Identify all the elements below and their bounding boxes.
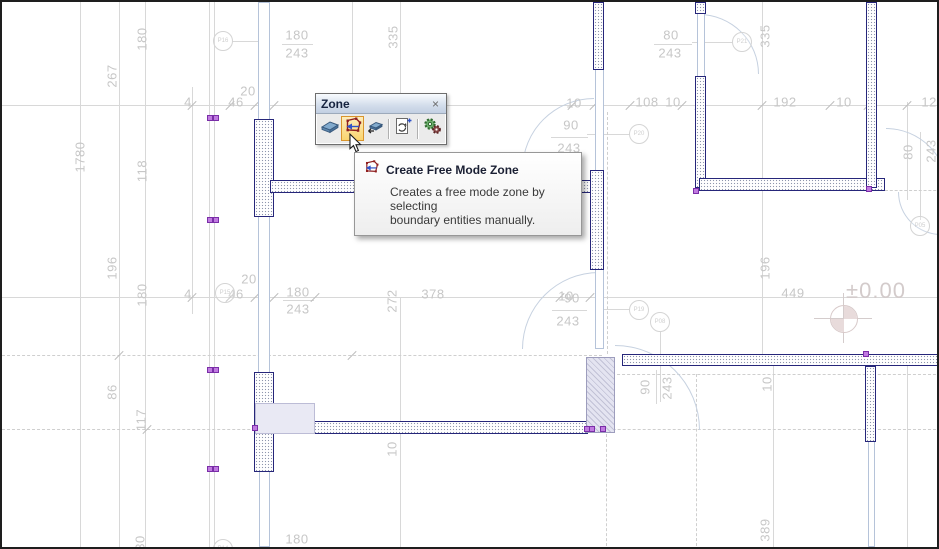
zone-free-mode-icon: [363, 159, 380, 181]
dimension-label: 10: [566, 96, 581, 111]
dimension-label: 108: [635, 95, 658, 110]
door-swing-arc: [522, 272, 599, 349]
window-symbol: [258, 2, 270, 120]
selection-handle: [213, 217, 219, 223]
tooltip-description-line2: boundary entities manually.: [390, 213, 573, 227]
dimension-label: 90: [638, 379, 653, 394]
dimension-label: 20: [240, 84, 255, 99]
dimension-label: 118: [135, 160, 150, 182]
zone-toolbar-buttons: [316, 114, 446, 143]
dimension-label: 192: [773, 95, 796, 110]
window-symbol: [697, 13, 705, 77]
level-marker-quadrant: [831, 319, 844, 332]
tooltip-create-free-mode-zone: Create Free Mode Zone Creates a free mod…: [354, 152, 582, 236]
dashed-reference-line: [885, 190, 939, 191]
reference-bubble: P14: [213, 539, 233, 549]
dimension-label: 90: [563, 118, 578, 133]
dimension-label: 335: [386, 25, 401, 48]
window-symbol: [595, 68, 604, 172]
dimension-label: 80: [663, 28, 678, 43]
dimension-label: 196: [758, 256, 773, 279]
selection-handle: [589, 426, 595, 432]
dimension-label: 180: [135, 283, 150, 306]
wall-segment: [866, 2, 877, 188]
cad-drawing-canvas[interactable]: 4462018024333510902431081080243192101293…: [0, 0, 939, 549]
wall-segment: [590, 170, 604, 270]
dimension-label: 117: [134, 409, 149, 431]
dashed-reference-line: [606, 434, 607, 549]
dimension-label: 80: [901, 144, 916, 159]
selection-handle: [213, 367, 219, 373]
dimension-label: 20: [241, 272, 256, 287]
dimension-label: 180: [135, 27, 150, 50]
dimension-label: 90: [564, 291, 579, 306]
dimension-label: 243: [286, 302, 309, 317]
level-value: ±0.00: [846, 278, 906, 304]
dimension-label: 196: [105, 256, 120, 279]
dim-line: [80, 2, 81, 549]
dimension-label: 180: [285, 28, 308, 43]
dim-line: [2, 105, 939, 106]
dimension-label: 378: [421, 287, 444, 302]
dim-line: [352, 2, 353, 105]
wall-segment: [313, 421, 588, 434]
tooltip-description-line1: Creates a free mode zone by selecting: [390, 185, 573, 213]
dimension-label: 335: [758, 24, 773, 47]
create-zone-reference-button[interactable]: [364, 116, 386, 141]
reference-bubble: P15: [215, 283, 235, 303]
dimension-label: 30: [133, 535, 148, 549]
gears-icon: [422, 116, 442, 141]
wall-segment: [622, 354, 939, 366]
dimension-label: 10: [385, 441, 400, 456]
dim-line: [232, 41, 258, 42]
dimension-label: 243: [924, 139, 939, 162]
dim-line: [192, 87, 193, 314]
dimension-label: 180: [286, 285, 309, 300]
zone-box-icon: [320, 116, 340, 141]
zone-toolbar-titlebar[interactable]: Zone ×: [316, 94, 446, 114]
dim-line: [239, 547, 314, 548]
zone-toolbar[interactable]: Zone ×: [315, 93, 447, 145]
window-symbol: [868, 441, 875, 547]
reference-bubble: P21: [732, 32, 752, 52]
dimension-label: 389: [758, 518, 773, 541]
zone-settings-button[interactable]: [421, 116, 443, 141]
dimension-label: 10: [665, 95, 680, 110]
zone-box-small-icon: [365, 116, 385, 141]
reference-bubble: P20: [629, 124, 649, 144]
reference-bubble: P05: [910, 216, 930, 236]
update-zones-button[interactable]: [392, 116, 414, 141]
mouse-cursor-icon: [348, 133, 363, 159]
wall-segment: [699, 178, 885, 191]
selection-handle: [866, 186, 872, 192]
dimension-label: 243: [556, 314, 579, 329]
tooltip-title: Create Free Mode Zone: [386, 163, 519, 177]
window-symbol: [259, 471, 270, 547]
toolbar-separator: [388, 119, 390, 139]
dimension-label: 10: [836, 95, 851, 110]
dimension-label: 267: [105, 64, 120, 87]
dashed-reference-line: [2, 355, 602, 356]
wall-segment: [593, 2, 604, 70]
selection-handle: [252, 425, 258, 431]
wall-segment: [254, 119, 274, 217]
selection-handle: [693, 188, 699, 194]
reference-bubble: P08: [650, 312, 670, 332]
dimension-label: 243: [285, 46, 308, 61]
window-symbol: [258, 216, 270, 373]
reference-bubble: P19: [629, 300, 649, 320]
wall-segment: [695, 76, 706, 188]
dimension-label: 243: [658, 46, 681, 61]
dimension-label: 272: [385, 289, 400, 312]
wall-segment: [695, 2, 706, 14]
window-symbol: [595, 269, 604, 349]
dimension-label: 1780: [73, 142, 88, 173]
dimension-label: 86: [105, 384, 120, 399]
dimension-label: 449: [781, 286, 804, 301]
selection-handle: [213, 115, 219, 121]
level-marker-icon: [830, 305, 858, 333]
create-zone-button[interactable]: [319, 116, 341, 141]
dashed-reference-line: [607, 112, 608, 354]
dimension-label: 243: [660, 376, 675, 399]
dimension-label: 4: [184, 95, 192, 110]
selected-zone-rect: [255, 403, 315, 434]
dimension-label: 129: [921, 95, 939, 110]
toolbar-separator: [417, 119, 419, 139]
column-element: [586, 357, 615, 433]
selection-handle: [213, 466, 219, 472]
dim-line: [145, 2, 146, 549]
level-marker-quadrant: [844, 306, 857, 319]
dim-line: [907, 354, 908, 549]
wall-segment: [865, 366, 876, 442]
close-icon[interactable]: ×: [430, 98, 441, 110]
dimension-label: 180: [285, 532, 308, 547]
selection-handle: [863, 351, 869, 357]
dimension-label: 10: [760, 376, 775, 391]
selection-handle: [600, 426, 606, 432]
dim-line: [400, 2, 401, 105]
dashed-reference-line: [696, 374, 697, 549]
update-zones-icon: [393, 116, 413, 141]
zone-toolbar-title: Zone: [321, 97, 430, 111]
reference-bubble: P16: [213, 31, 233, 51]
dimension-label: 4: [184, 287, 192, 302]
